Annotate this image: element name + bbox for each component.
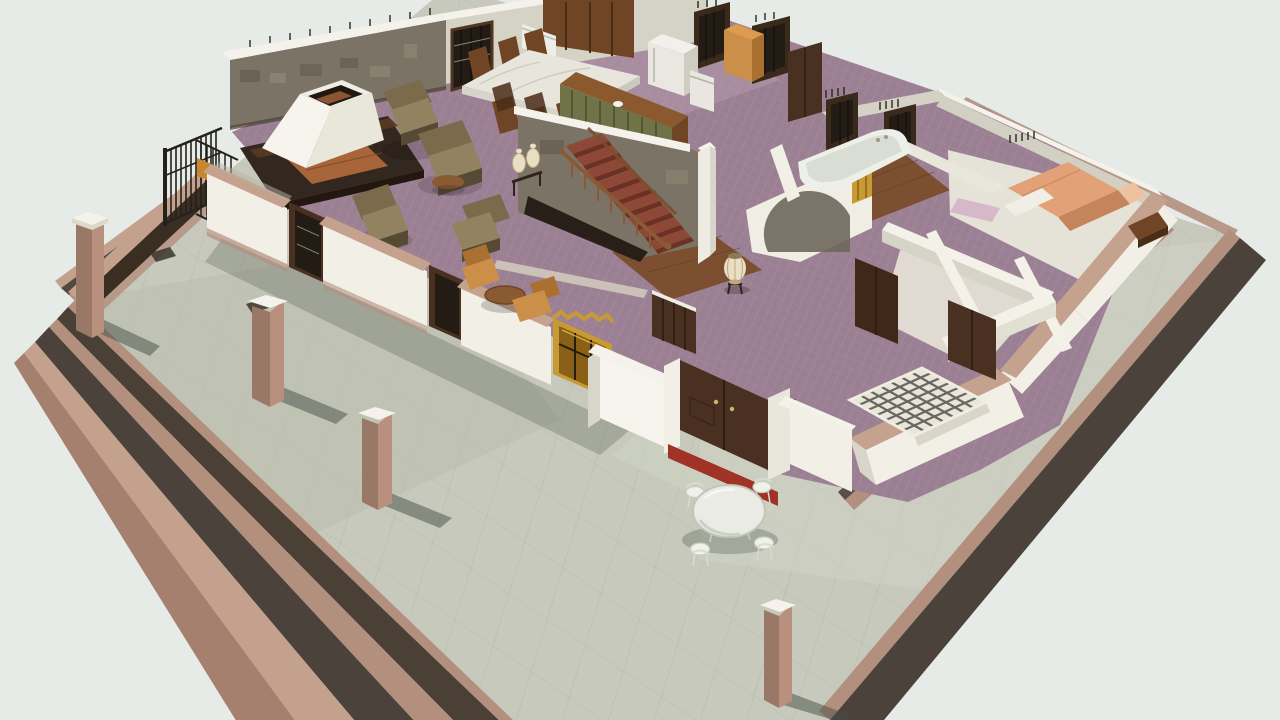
orange-cabinet	[724, 24, 764, 82]
floor-plan-render	[0, 0, 1280, 720]
cup	[613, 101, 623, 107]
kitchen-door	[788, 42, 822, 122]
render-canvas	[0, 0, 1280, 720]
coffee-table	[432, 175, 464, 195]
